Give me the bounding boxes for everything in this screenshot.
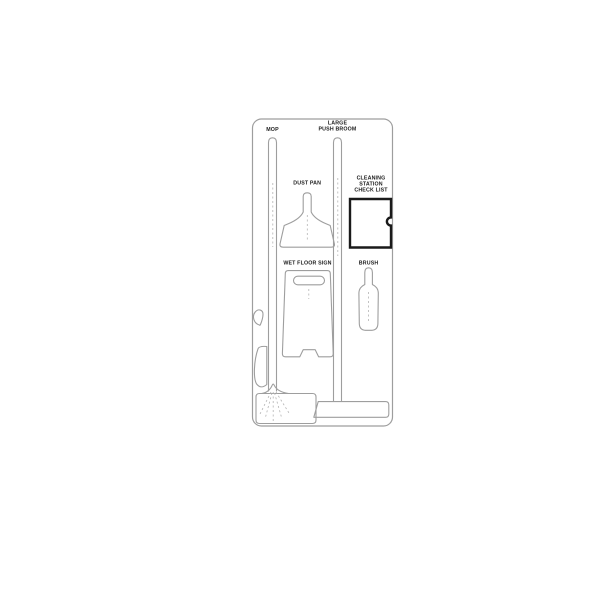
check-list-label-line3: CHECK LIST xyxy=(354,188,388,194)
push-broom-label-line2: PUSH BROOM xyxy=(319,127,357,133)
shadow-board-outline xyxy=(253,119,393,426)
mop-label: MOP xyxy=(266,127,279,133)
cleaning-station-shadow-board: MOP LARGE PUSH BROOM DUST PAN CLEANING S… xyxy=(0,0,600,600)
dust-pan-label: DUST PAN xyxy=(293,181,321,187)
wet-floor-sign-label: WET FLOOR SIGN xyxy=(283,261,331,267)
product-image-canvas: MOP LARGE PUSH BROOM DUST PAN CLEANING S… xyxy=(0,0,600,600)
brush-label: BRUSH xyxy=(359,261,379,267)
